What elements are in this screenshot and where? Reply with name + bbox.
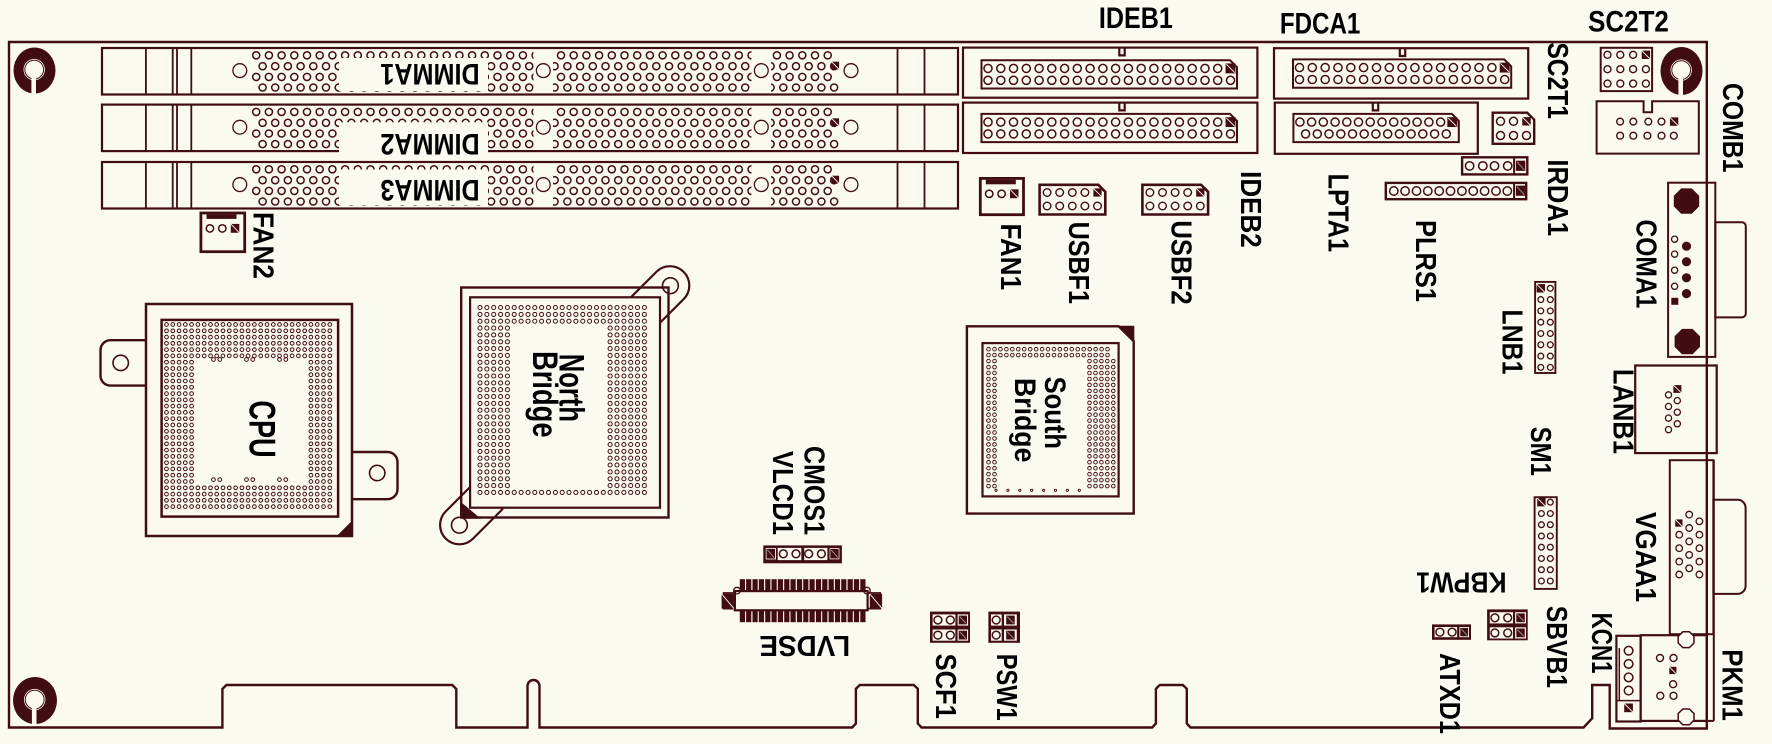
svg-text:PKM1: PKM1	[1716, 649, 1748, 721]
svg-text:SCF1: SCF1	[929, 654, 961, 719]
svg-text:DIMMA1: DIMMA1	[380, 57, 479, 90]
svg-text:IDEB2: IDEB2	[1234, 171, 1266, 248]
svg-text:South: South	[1038, 377, 1071, 449]
svg-text:COMB1: COMB1	[1716, 83, 1748, 172]
svg-text:Bridge: Bridge	[1008, 378, 1041, 462]
svg-text:FAN2: FAN2	[246, 212, 278, 279]
svg-text:KCN1: KCN1	[1585, 613, 1617, 674]
svg-text:COMA1: COMA1	[1630, 219, 1662, 308]
svg-text:FAN1: FAN1	[994, 224, 1026, 291]
svg-text:VLCD1: VLCD1	[766, 451, 798, 535]
svg-text:CMOS1: CMOS1	[798, 446, 830, 535]
svg-text:DIMMA3: DIMMA3	[380, 173, 479, 206]
svg-text:USBF2: USBF2	[1164, 220, 1196, 304]
svg-text:FDCA1: FDCA1	[1280, 8, 1361, 41]
svg-text:SC2T2: SC2T2	[1588, 6, 1669, 39]
svg-text:LANB1: LANB1	[1606, 369, 1638, 454]
svg-text:LPTA1: LPTA1	[1321, 174, 1353, 253]
svg-text:IDEB1: IDEB1	[1099, 2, 1173, 35]
svg-text:VGAA1: VGAA1	[1629, 512, 1661, 602]
svg-text:IRDA1: IRDA1	[1541, 159, 1573, 236]
svg-text:Bridge: Bridge	[525, 351, 564, 438]
svg-text:ATXD1: ATXD1	[1433, 653, 1465, 734]
svg-text:LVDSE: LVDSE	[759, 629, 850, 661]
svg-text:SBVB1: SBVB1	[1540, 606, 1572, 688]
svg-text:SM1: SM1	[1524, 427, 1556, 476]
svg-text:LNB1: LNB1	[1496, 310, 1528, 375]
svg-text:PLRS1: PLRS1	[1409, 220, 1441, 302]
svg-text:KBPW1: KBPW1	[1416, 565, 1506, 597]
svg-text:CPU: CPU	[241, 400, 282, 457]
svg-text:SC2T1: SC2T1	[1541, 42, 1573, 119]
svg-text:PSW1: PSW1	[990, 654, 1022, 721]
svg-text:USBF1: USBF1	[1062, 222, 1094, 304]
svg-text:DIMMA2: DIMMA2	[380, 127, 479, 160]
